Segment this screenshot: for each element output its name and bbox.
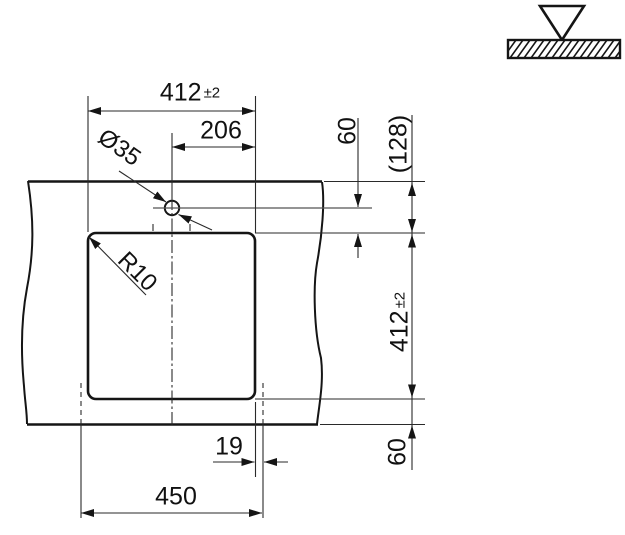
dim-bottom-edge-offset: 60 [386,438,411,466]
hole-leader-lower [179,215,213,231]
center-lines [153,133,372,425]
dim-rim-overhang: 19 [215,435,243,460]
hole-leader-upper [119,171,166,202]
drawing-geometry [0,0,625,535]
worktop-panel-outline [22,181,323,425]
dim-width-top: 412±2 [160,81,220,106]
top-mount-symbol-icon [496,6,625,58]
dim-depth-right-tolerance: ±2 [392,292,409,309]
dim-outer-width: 450 [155,485,197,510]
break-line-right [315,182,324,424]
technical-drawing-canvas: 412±2 206 Ø35 R10 60 (128) 412±2 60 19 4… [0,0,625,535]
dim-half-width: 206 [200,119,242,144]
dim-hole-offset-top: 60 [336,117,361,145]
dim-depth-right: 412±2 [388,292,413,352]
dim-depth-right-value: 412 [386,310,414,352]
dimension-lines [81,111,412,513]
dim-front-depth-ref: (128) [387,115,412,173]
break-line-left [22,181,32,424]
dim-width-top-tolerance: ±2 [204,85,221,102]
dim-width-top-value: 412 [160,79,202,107]
